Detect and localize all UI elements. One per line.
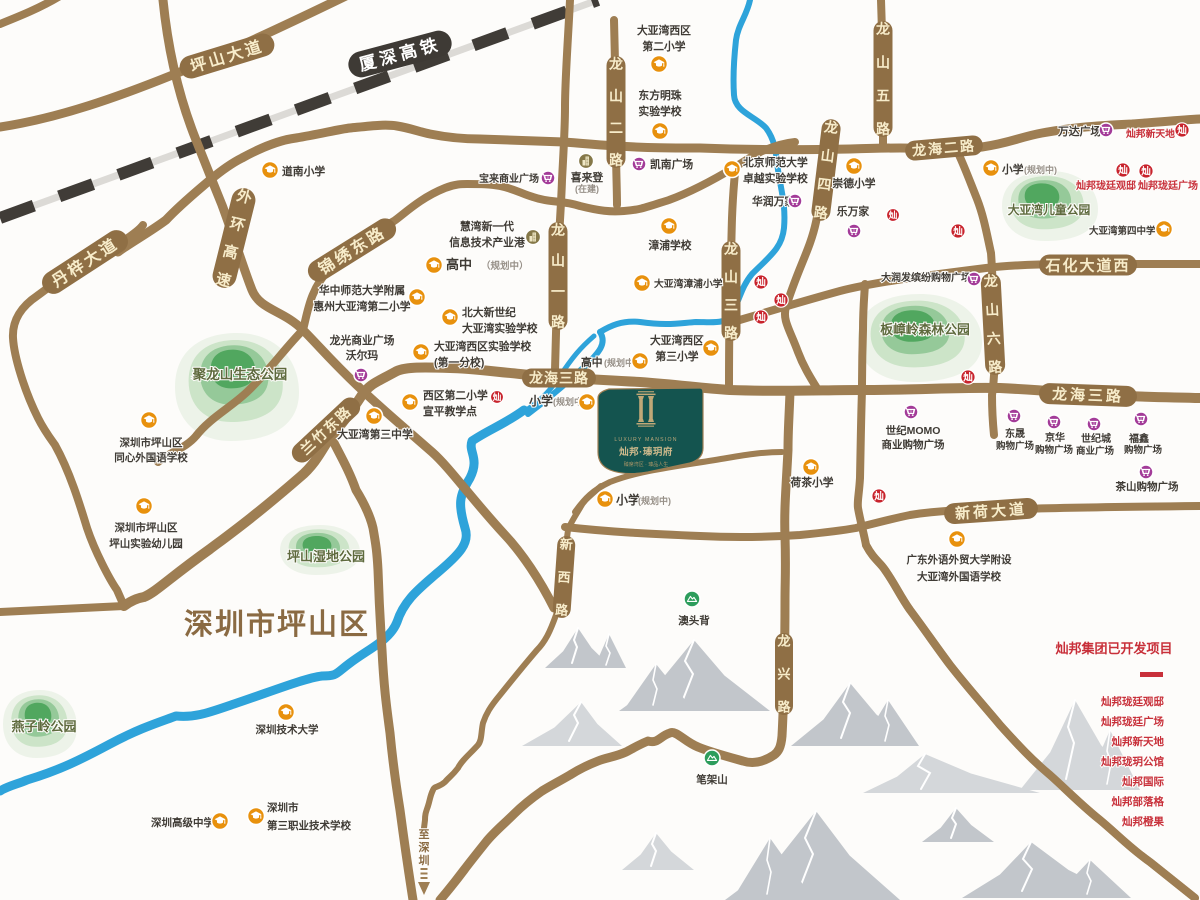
svg-text:龙海三路: 龙海三路 [1051, 385, 1125, 406]
svg-text:宝来商业广场: 宝来商业广场 [479, 172, 539, 185]
svg-text:灿邦珑廷广场: 灿邦珑廷广场 [1101, 715, 1164, 728]
svg-text:六: 六 [986, 330, 1001, 347]
svg-text:西区第二小学: 西区第二小学 [423, 388, 488, 402]
svg-text:路: 路 [555, 602, 570, 618]
svg-text:惠州大亚湾第二小学: 惠州大亚湾第二小学 [313, 299, 410, 313]
svg-text:大润发缤纷购物广场: 大润发缤纷购物广场 [881, 271, 971, 284]
svg-text:龙: 龙 [822, 118, 839, 136]
svg-text:大亚湾第三中学: 大亚湾第三中学 [337, 427, 413, 441]
svg-text:龙海三路: 龙海三路 [528, 370, 589, 386]
svg-text:灿邦新天地: 灿邦新天地 [1126, 127, 1175, 140]
svg-text:深圳市坪山区: 深圳市坪山区 [120, 436, 183, 449]
svg-text:石化大道西: 石化大道西 [1044, 256, 1130, 274]
svg-text:京华: 京华 [1045, 431, 1065, 444]
svg-text:小学: 小学 [1002, 162, 1024, 176]
svg-text:深圳市: 深圳市 [267, 801, 299, 814]
svg-text:二: 二 [609, 120, 623, 136]
svg-text:小学: 小学 [616, 492, 640, 507]
svg-text:购物广场: 购物广场 [996, 440, 1035, 452]
svg-text:世纪城: 世纪城 [1081, 432, 1111, 445]
svg-text:至: 至 [419, 828, 430, 841]
svg-text:龙: 龙 [608, 56, 623, 72]
svg-text:(规划中): (规划中) [638, 495, 671, 506]
svg-text:路: 路 [876, 121, 891, 137]
svg-text:大亚湾漳浦小学: 大亚湾漳浦小学 [654, 277, 723, 290]
svg-text:坪山湿地公园: 坪山湿地公园 [287, 549, 365, 564]
svg-text:深圳技术大学: 深圳技术大学 [256, 723, 319, 736]
svg-text:商业广场: 商业广场 [1076, 445, 1115, 457]
svg-text:大亚湾外国语学校: 大亚湾外国语学校 [917, 570, 1001, 583]
svg-text:(在建): (在建) [575, 183, 599, 194]
svg-text:龙: 龙 [777, 634, 790, 649]
svg-text:澳头背: 澳头背 [678, 614, 710, 627]
svg-text:一: 一 [551, 283, 565, 299]
svg-text:三: 三 [724, 297, 738, 313]
svg-text:喜来登: 喜来登 [571, 170, 604, 184]
svg-text:（规划中）: （规划中） [481, 260, 529, 272]
svg-text:山: 山 [609, 88, 623, 104]
svg-text:路: 路 [988, 359, 1004, 376]
svg-text:灿邦集团已开发项目: 灿邦集团已开发项目 [1055, 641, 1172, 656]
svg-text:高中: 高中 [581, 355, 603, 369]
svg-text:臻席湾区 · 瑧品人生: 臻席湾区 · 瑧品人生 [624, 461, 668, 468]
svg-text:大亚湾儿童公园: 大亚湾儿童公园 [1008, 203, 1091, 217]
svg-text:北大新世纪: 北大新世纪 [462, 305, 516, 319]
svg-text:世纪MOMO: 世纪MOMO [886, 424, 941, 437]
svg-text:龙: 龙 [723, 241, 738, 257]
svg-text:第二小学: 第二小学 [642, 39, 685, 53]
svg-text:第三职业技术学校: 第三职业技术学校 [267, 819, 351, 832]
svg-text:山: 山 [724, 269, 738, 285]
svg-text:实验学校: 实验学校 [638, 104, 681, 118]
svg-text:龙: 龙 [982, 273, 998, 290]
svg-text:龙: 龙 [875, 21, 890, 37]
svg-text:灿邦橙果: 灿邦橙果 [1122, 815, 1164, 828]
svg-text:购物广场: 购物广场 [1124, 444, 1163, 456]
svg-text:山: 山 [551, 253, 565, 269]
svg-text:大亚湾西区: 大亚湾西区 [637, 23, 691, 37]
svg-text:灿邦珑廷广场: 灿邦珑廷广场 [1138, 179, 1198, 192]
svg-text:(第一分校): (第一分校) [434, 355, 485, 369]
svg-text:大亚湾西区: 大亚湾西区 [650, 333, 704, 347]
svg-text:路: 路 [551, 314, 566, 330]
svg-text:深圳市坪山区: 深圳市坪山区 [115, 521, 178, 534]
svg-text:灿邦部落格: 灿邦部落格 [1112, 795, 1165, 808]
svg-text:聚龙山生态公园: 聚龙山生态公园 [192, 366, 288, 382]
svg-text:信息技术产业港: 信息技术产业港 [449, 235, 525, 249]
svg-text:万达广场: 万达广场 [1057, 124, 1101, 138]
svg-text:慧湾新一代: 慧湾新一代 [460, 219, 514, 233]
svg-text:四: 四 [816, 175, 832, 193]
svg-text:乐万家: 乐万家 [837, 204, 870, 218]
svg-text:深圳高级中学: 深圳高级中学 [151, 816, 214, 829]
svg-text:东方明珠: 东方明珠 [638, 88, 681, 102]
svg-text:凯南广场: 凯南广场 [650, 157, 693, 171]
svg-text:深: 深 [419, 840, 430, 854]
svg-text:笔架山: 笔架山 [696, 773, 728, 786]
svg-text:沃尔玛: 沃尔玛 [346, 348, 379, 362]
svg-text:五: 五 [876, 88, 890, 104]
svg-text:大亚湾实验学校: 大亚湾实验学校 [462, 321, 538, 335]
svg-text:北京师范大学: 北京师范大学 [743, 155, 808, 169]
svg-text:灿邦·瑧玥府: 灿邦·瑧玥府 [619, 446, 673, 458]
svg-text:小学: 小学 [529, 393, 553, 408]
svg-text:荷茶小学: 荷茶小学 [789, 475, 833, 489]
svg-text:第三小学: 第三小学 [655, 349, 698, 363]
svg-text:茶山购物广场: 茶山购物广场 [1115, 480, 1179, 493]
svg-text:兴: 兴 [777, 667, 790, 682]
svg-text:华中师范大学附属: 华中师范大学附属 [319, 283, 405, 297]
svg-text:路: 路 [724, 325, 739, 341]
svg-text:山: 山 [820, 147, 836, 165]
svg-text:崇德小学: 崇德小学 [832, 176, 875, 190]
svg-text:商业购物广场: 商业购物广场 [882, 438, 945, 451]
svg-text:广东外语外贸大学附设: 广东外语外贸大学附设 [907, 553, 1012, 566]
svg-text:山: 山 [985, 301, 1000, 318]
svg-text:灿邦珑廷观邸: 灿邦珑廷观邸 [1076, 179, 1136, 192]
svg-text:(规划中): (规划中) [1024, 164, 1057, 175]
svg-text:购物广场: 购物广场 [1035, 444, 1074, 456]
svg-text:灿邦珑廷观邸: 灿邦珑廷观邸 [1101, 695, 1164, 708]
svg-text:龙: 龙 [550, 222, 565, 238]
svg-text:灿邦珑玥公馆: 灿邦珑玥公馆 [1101, 755, 1164, 768]
svg-text:坪山实验幼儿园: 坪山实验幼儿园 [109, 537, 183, 550]
svg-text:路: 路 [609, 152, 624, 168]
svg-text:福鑫: 福鑫 [1128, 432, 1149, 445]
svg-text:宣平教学点: 宣平教学点 [423, 404, 477, 418]
svg-text:板嶂岭森林公园: 板嶂岭森林公园 [880, 322, 970, 337]
svg-text:大亚湾第四中学: 大亚湾第四中学 [1089, 225, 1156, 237]
svg-text:燕子岭公园: 燕子岭公园 [11, 719, 76, 734]
svg-text:圳: 圳 [419, 853, 430, 867]
svg-text:LUXURY MANSION: LUXURY MANSION [614, 437, 677, 443]
svg-text:山: 山 [876, 54, 890, 70]
svg-text:道南小学: 道南小学 [282, 164, 325, 178]
svg-text:深圳市坪山区: 深圳市坪山区 [184, 607, 370, 641]
svg-text:灿邦新天地: 灿邦新天地 [1112, 735, 1165, 748]
svg-text:路: 路 [777, 700, 791, 715]
svg-text:高中: 高中 [446, 257, 472, 272]
svg-text:卓越实验学校: 卓越实验学校 [743, 171, 808, 185]
svg-text:龙光商业广场: 龙光商业广场 [329, 333, 395, 347]
svg-text:灿邦国际: 灿邦国际 [1122, 775, 1164, 788]
svg-text:漳浦学校: 漳浦学校 [648, 238, 691, 252]
svg-text:新: 新 [559, 536, 573, 552]
svg-text:西: 西 [557, 569, 571, 585]
svg-text:东晟: 东晟 [1005, 427, 1025, 440]
svg-text:大亚湾西区实验学校: 大亚湾西区实验学校 [434, 339, 531, 353]
svg-text:同心外国语学校: 同心外国语学校 [114, 451, 188, 464]
